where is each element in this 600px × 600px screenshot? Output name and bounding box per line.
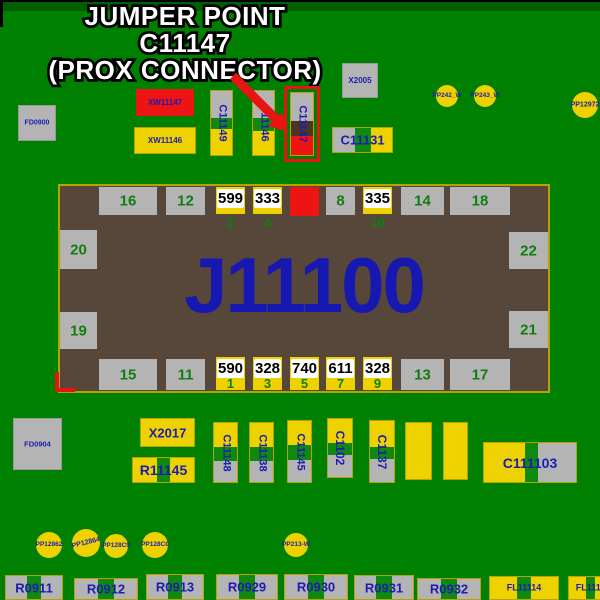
- component-X2017: X2017: [140, 418, 195, 447]
- pad-number: 11: [178, 366, 194, 383]
- component-label: X2005: [348, 77, 371, 85]
- component-PP128C0: PP128C0: [142, 532, 168, 558]
- pad-17: 17: [450, 359, 510, 390]
- component-label: C11138: [256, 434, 267, 471]
- component-label: PP12862: [36, 542, 63, 549]
- annotation-title: JUMPER POINT C11147 (PROX CONNECTOR): [0, 3, 370, 84]
- component-XW11146: XW11146: [134, 127, 196, 154]
- pad-number: 19: [70, 322, 87, 339]
- pad-pin-number: 1: [216, 377, 245, 390]
- pad-8: 8: [326, 187, 355, 215]
- pad-pin-number: 9: [363, 377, 392, 390]
- component-label: R0932: [430, 583, 468, 596]
- component-label: R0912: [87, 583, 125, 596]
- pad-19: 19: [60, 312, 97, 349]
- component-label: XW11147: [148, 99, 182, 107]
- pin1-marker-horizontal: [55, 388, 75, 392]
- component-label: PP242_W: [432, 93, 461, 100]
- annotation-line-3: (PROX CONNECTOR): [0, 57, 370, 84]
- pad-number: 8: [336, 193, 344, 210]
- annotation-line-2: C11147: [0, 30, 370, 57]
- component-label: C11147: [297, 105, 308, 142]
- pad-18: 18: [450, 187, 510, 215]
- pad-value-box: 335: [364, 189, 391, 208]
- component-label: R11145: [140, 463, 188, 477]
- pad-number: 21: [520, 321, 537, 338]
- component-R0929: R0929: [216, 574, 278, 600]
- component-C11138: C11138: [249, 422, 274, 483]
- pad-15: 15: [99, 359, 157, 390]
- component-R0911: R0911: [5, 575, 63, 600]
- component-R0931: R0931: [354, 575, 414, 600]
- component-C11146: C11146: [252, 90, 275, 156]
- pad-611: 6117: [326, 357, 355, 390]
- component-label: C11149: [216, 104, 227, 141]
- component-label: X2017: [149, 426, 187, 439]
- pad-number: 22: [520, 242, 537, 259]
- component-label: C1102: [334, 431, 346, 466]
- connector-refdes-label: J11100: [184, 239, 424, 330]
- component-label: R0929: [228, 581, 266, 594]
- component-label: C11145: [294, 433, 305, 470]
- pad-16: 16: [99, 187, 157, 215]
- component-label: C11131: [340, 134, 384, 147]
- pad-number: 15: [120, 366, 137, 383]
- pad-pin-number: 7: [326, 377, 355, 390]
- pad-pin-number: 5: [290, 377, 319, 390]
- component-label: R0931: [365, 581, 403, 594]
- pad-number: 20: [70, 241, 87, 258]
- component-FD0904: FD0904: [13, 418, 62, 470]
- annotation-line-1: JUMPER POINT: [0, 3, 370, 30]
- pad-pin-number: 4: [253, 216, 282, 229]
- component-label: PP128C0: [141, 542, 169, 549]
- component-label: PP12864: [71, 536, 101, 550]
- pad-11: 11: [166, 359, 205, 390]
- pad-21: 21: [509, 311, 548, 348]
- component-label: FL11114: [507, 584, 542, 593]
- pad-number: 18: [472, 193, 489, 210]
- pad-22: 22: [509, 232, 548, 269]
- pad-13: 13: [401, 359, 444, 390]
- component-label: XW11146: [148, 137, 182, 145]
- component-label: R0913: [156, 581, 194, 594]
- component-R0930: R0930: [284, 574, 348, 600]
- component-PP12972: PP12972: [572, 92, 598, 118]
- pad-333: 3334: [253, 187, 282, 214]
- component-C11147: C11147: [290, 92, 314, 156]
- component-label: R0911: [15, 581, 53, 594]
- pad-pin-number: 3: [253, 377, 282, 390]
- component-label: C1137: [376, 434, 388, 469]
- pad-599: 5992: [216, 187, 245, 214]
- pad-number: 17: [472, 366, 489, 383]
- component-PP242_W: PP242_W: [436, 85, 458, 107]
- component-label: FD0900: [25, 120, 50, 127]
- component-R11145: R11145: [132, 457, 195, 483]
- component-label: PP12972: [571, 102, 600, 109]
- component-X2005: X2005: [342, 63, 378, 98]
- component-C11131: C11131: [332, 127, 393, 153]
- component-C1102: C1102: [327, 418, 353, 478]
- pad-328: 3289: [363, 357, 392, 390]
- pad-red: [290, 187, 319, 216]
- pad-number: 12: [177, 193, 194, 210]
- pad-14: 14: [401, 187, 444, 215]
- component-label: C11146: [258, 104, 269, 141]
- component-R0912: R0912: [74, 578, 138, 600]
- pad-590: 5901: [216, 357, 245, 390]
- pad-328: 3283: [253, 357, 282, 390]
- pcb-board-view: JUMPER POINT C11147 (PROX CONNECTOR) FD0…: [0, 0, 600, 600]
- pad-12: 12: [166, 187, 205, 215]
- component-PP213-W: PP213-W: [284, 533, 308, 557]
- component-PP12864: PP12864: [72, 529, 100, 557]
- pad-pin-number: 2: [216, 216, 245, 229]
- component-C1137: C1137: [369, 420, 395, 483]
- component-FL11114: FL11114: [489, 576, 559, 600]
- pad-pin-number: 10: [363, 216, 392, 229]
- pad-number: 16: [120, 193, 137, 210]
- component-PP243_W: PP243_W: [474, 85, 496, 107]
- component-R0913: R0913: [146, 574, 204, 600]
- component-label: PP243_W: [470, 93, 499, 100]
- pad-20: 20: [60, 230, 97, 269]
- component-label: C11148: [220, 434, 231, 471]
- component-FD0900: FD0900: [18, 105, 56, 141]
- pad-740: 7405: [290, 357, 319, 390]
- component-label: PP213-W: [282, 542, 310, 549]
- component-C11149: C11149: [210, 90, 233, 156]
- component-pad-unlabeled-2: [443, 422, 468, 480]
- component-label: FD0904: [24, 440, 51, 448]
- pad-335: 33510: [363, 187, 392, 214]
- component-PP12862: PP12862: [36, 532, 62, 558]
- component-pad-unlabeled-1: [405, 422, 432, 480]
- component-R0932: R0932: [417, 578, 481, 600]
- connector-j11100: J11100 161259923334833510141815115901328…: [58, 184, 550, 393]
- component-label: PP128C9: [102, 543, 130, 550]
- component-label: C111103: [503, 456, 558, 470]
- pad-number: 13: [414, 366, 431, 383]
- component-label: FL1111: [576, 584, 600, 593]
- component-XW11147: XW11147: [136, 89, 194, 116]
- pad-value-box: 333: [254, 189, 281, 208]
- component-C11148: C11148: [213, 422, 238, 483]
- component-C11145: C11145: [287, 420, 312, 483]
- pad-value-box: 599: [217, 189, 244, 208]
- component-C111103: C111103: [483, 442, 577, 483]
- pad-number: 14: [414, 193, 431, 210]
- component-FL1111: FL1111: [568, 576, 600, 600]
- component-label: R0930: [297, 581, 335, 594]
- component-PP128C9: PP128C9: [104, 534, 128, 558]
